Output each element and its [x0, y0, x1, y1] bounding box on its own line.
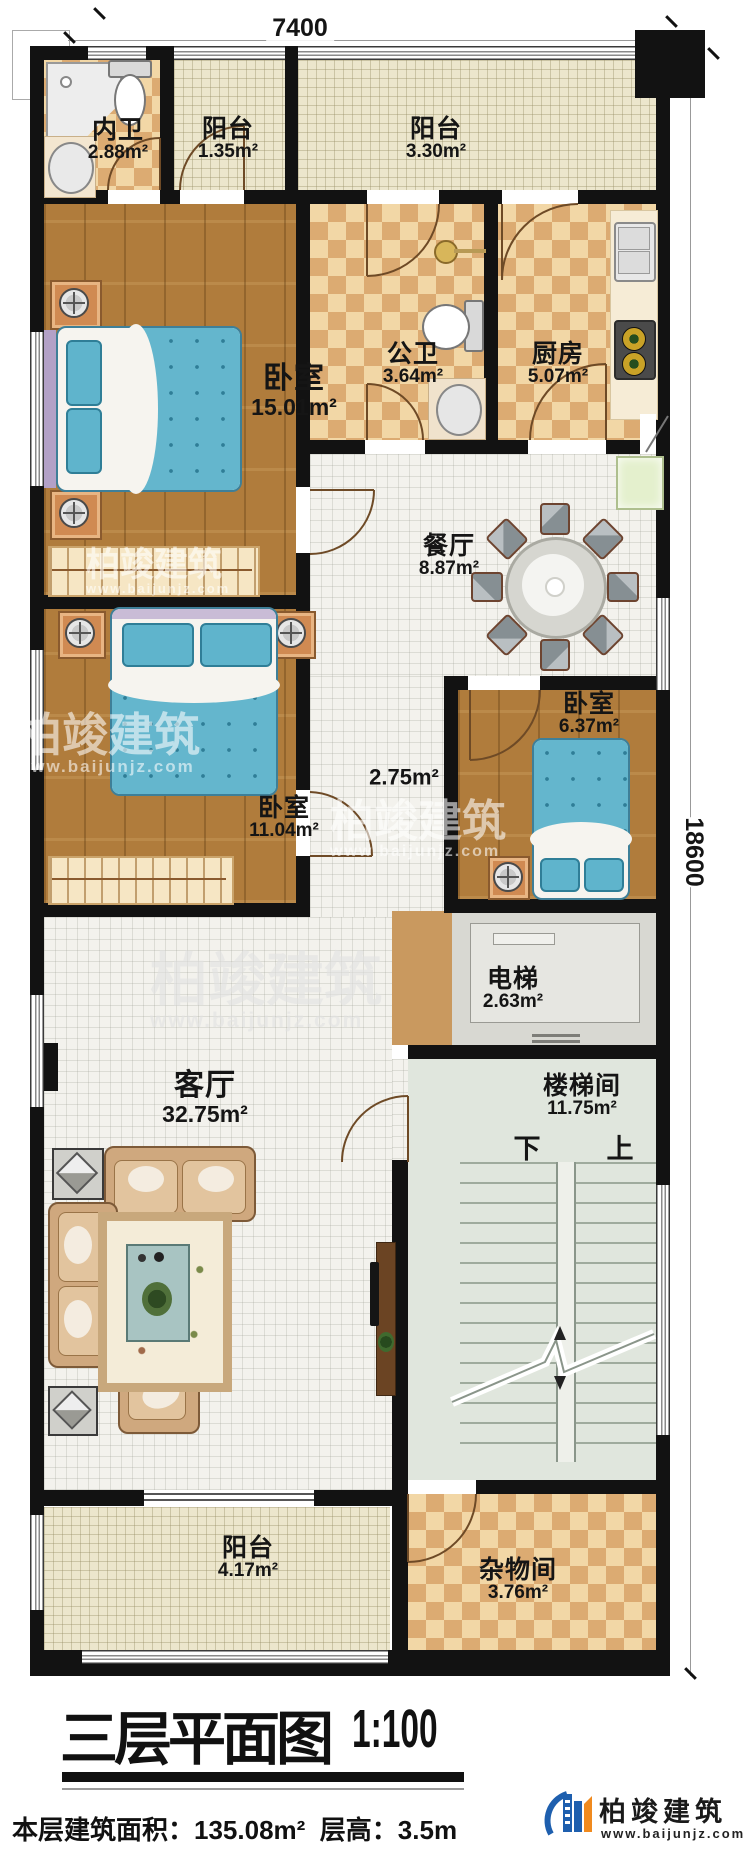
room-label-corridor: 2.75m²: [369, 765, 439, 788]
title-underline-thin: [62, 1788, 464, 1790]
brand-name: 柏竣建筑: [599, 1790, 727, 1829]
room-label-bedroom-right: 卧室6.37m²: [559, 691, 619, 737]
stairs-down-label: 下: [514, 1135, 541, 1163]
room-label-balcony-bottom: 阳台4.17m²: [218, 1535, 278, 1581]
footer-area-value: 135.08m²: [194, 1815, 305, 1845]
stair-arrow: [554, 1376, 566, 1390]
page-title: 三层平面图: [60, 1692, 330, 1776]
floor-plan-sheet: 7400 18600: [0, 0, 750, 1858]
brand-url: www.baijunjz.com: [601, 1826, 745, 1841]
room-label-balcony-top-right: 阳台3.30m²: [406, 116, 466, 162]
stairs-up-label: 上: [607, 1135, 634, 1163]
door-arc: [310, 490, 374, 554]
room-label-kitchen: 厨房5.07m²: [528, 341, 588, 387]
door-arc: [470, 690, 540, 760]
footer-height-value: 3.5m: [398, 1815, 457, 1845]
room-label-living: 客厅32.75m²: [162, 1070, 248, 1126]
door-arc: [367, 384, 423, 440]
footer-height-label: 层高：: [320, 1815, 398, 1845]
door-arc: [502, 204, 578, 280]
room-label-elevator: 电梯2.63m²: [483, 966, 543, 1012]
title-scale: 1:100: [352, 1698, 438, 1760]
room-label-storage: 杂物间3.76m²: [479, 1557, 557, 1603]
door-arc: [408, 1494, 476, 1562]
room-label-bedroom-master: 卧室15.01m²: [251, 363, 337, 419]
title-underline: [62, 1772, 464, 1782]
door-arc: [367, 204, 439, 276]
door-arcs-layer: [0, 0, 750, 1858]
brand-logo-icon: [543, 1788, 593, 1844]
room-label-inner-bath: 内卫2.88m²: [88, 117, 148, 163]
stair-break: [452, 1326, 654, 1402]
room-label-dining: 餐厅8.87m²: [419, 533, 479, 579]
door-notch: [646, 416, 668, 452]
room-label-bedroom-left: 卧室11.04m²: [249, 795, 319, 841]
door-arc: [310, 792, 372, 856]
door-arc: [342, 1096, 408, 1162]
room-label-balcony-top-left: 阳台1.35m²: [198, 116, 258, 162]
footer-info: 本层建筑面积：135.08m² 层高：3.5m: [12, 1810, 457, 1847]
brand-logo: 柏竣建筑 www.baijunjz.com: [543, 1786, 743, 1848]
footer-area-label: 本层建筑面积：: [12, 1815, 194, 1845]
room-label-stairwell: 楼梯间11.75m²: [543, 1073, 621, 1119]
room-label-public-bath: 公卫3.64m²: [383, 341, 443, 387]
